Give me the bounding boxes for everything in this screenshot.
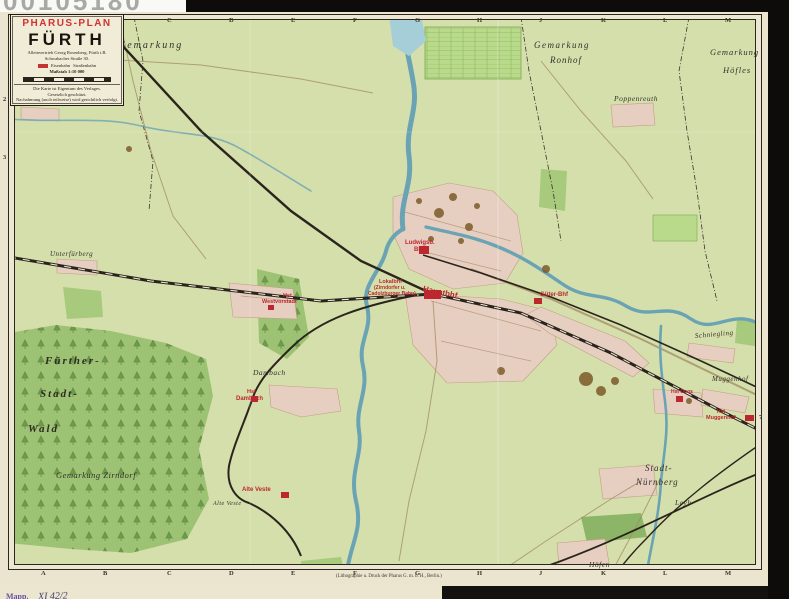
copyright-notes: Die Karte ist Eigentum des Verlages. Ges… [14,84,120,103]
stamp-prefix: Mapp. [6,592,28,599]
library-stamp: Mapp. XI 42/2 [6,586,68,599]
scanner-background-right [768,0,789,599]
printer-imprint: (Lithographie u. Druck der Pharus G. m. … [336,574,442,579]
map-artwork [14,19,756,565]
note-line-3: Nachahmung (auch teilweise) wird gericht… [14,97,120,103]
map-title: FÜRTH [14,30,120,50]
tram-color-swatch [38,64,48,68]
scale-bar [23,77,111,82]
address-line: Schwabacher Straße 30. [14,56,120,62]
scanned-map-page: 00105180 [0,0,789,599]
scale-label: Maßstab 1:10 000 [14,69,120,75]
distributor-line: Alleinvertrieb Georg Rosenberg, Fürth i.… [14,50,120,56]
map-canvas [14,19,756,565]
title-cartouche: PHARUS-PLAN FÜRTH Alleinvertrieb Georg R… [10,14,124,106]
publisher-brand: PHARUS-PLAN [14,18,120,29]
stamp-shelfmark: XI 42/2 [38,590,68,599]
